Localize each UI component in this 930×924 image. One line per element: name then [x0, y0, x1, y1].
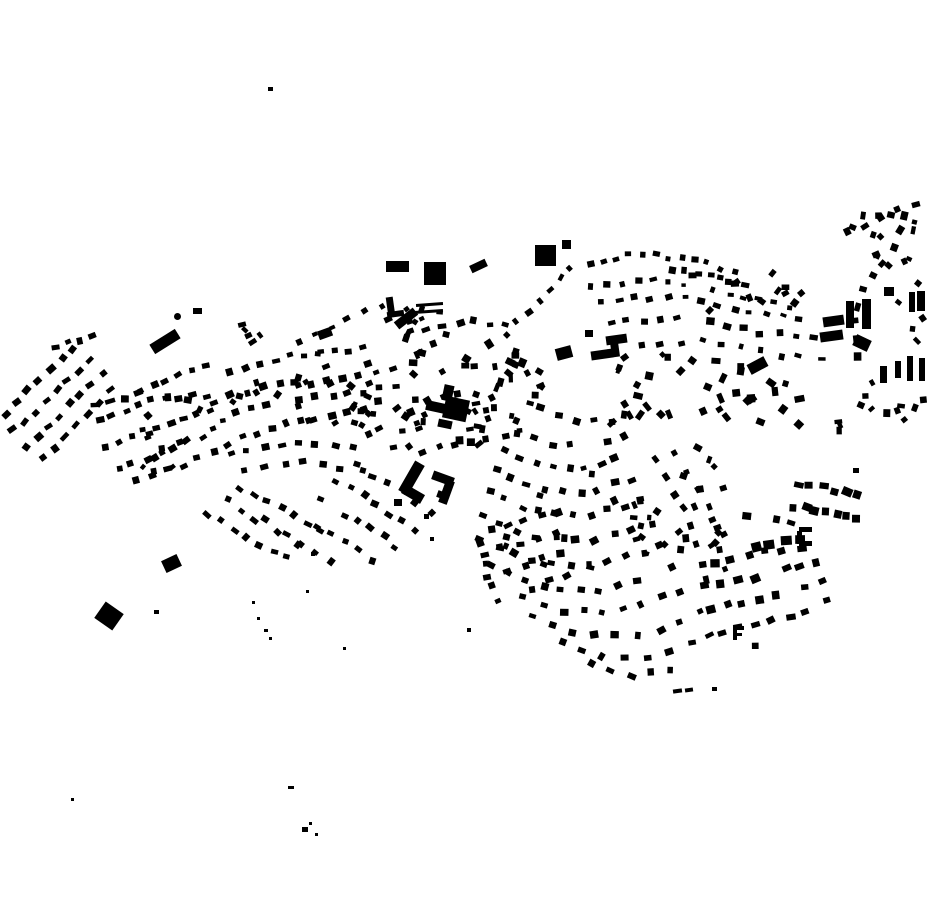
isolated-building-dot — [424, 514, 429, 519]
building-footprint — [677, 546, 684, 554]
building-footprint — [771, 590, 779, 599]
building-footprint — [437, 323, 446, 329]
building-footprint — [718, 342, 725, 347]
building-footprint — [804, 482, 812, 489]
building-footprint — [795, 316, 803, 322]
building-footprint — [578, 489, 586, 497]
building-footprint — [588, 283, 593, 290]
building-footprint — [630, 515, 638, 520]
building-footprint — [488, 525, 496, 533]
building-footprint — [696, 485, 704, 493]
building-footprint — [150, 468, 157, 475]
building-footprint — [549, 442, 558, 449]
building-footprint — [129, 433, 136, 440]
isolated-building-dot — [252, 601, 255, 604]
building-footprint — [739, 324, 747, 331]
building-footprint — [787, 305, 793, 310]
building-footprint — [782, 285, 790, 291]
building-footprint — [657, 316, 664, 324]
building-footprint — [376, 384, 383, 390]
isolated-building-dot — [264, 629, 268, 632]
building-footprint — [603, 281, 610, 288]
isolated-building-dot — [269, 637, 272, 640]
building-footprint — [241, 467, 248, 474]
landmark-building — [193, 308, 202, 314]
landmark-building — [895, 361, 901, 378]
building-footprint — [301, 354, 307, 359]
building-footprint — [276, 379, 284, 387]
building-footprint — [409, 359, 418, 366]
building-footprint — [700, 581, 710, 589]
landmark-building — [880, 366, 887, 383]
landmark-building — [919, 358, 925, 381]
f-small-top — [733, 626, 744, 630]
building-footprint — [665, 279, 670, 284]
building-footprint — [603, 438, 612, 446]
landmark-building — [394, 499, 402, 506]
building-footprint — [268, 425, 276, 432]
figure-ground-map — [0, 0, 930, 924]
isolated-building-dot — [309, 822, 312, 825]
building-footprint — [742, 512, 752, 520]
landmark-building — [909, 292, 915, 312]
c-building-bottom — [799, 541, 812, 546]
building-footprint — [567, 464, 574, 472]
large-hall-nw — [386, 261, 409, 272]
isolated-building-dot — [343, 647, 346, 650]
building-footprint — [644, 655, 652, 661]
isolated-building-dot — [712, 687, 717, 691]
building-footprint — [649, 520, 656, 528]
bar-building — [862, 299, 871, 329]
building-footprint — [752, 643, 759, 649]
building-footprint — [338, 374, 347, 383]
building-footprint — [586, 561, 591, 568]
building-footprint — [158, 445, 165, 452]
building-footprint — [680, 254, 686, 261]
building-footprint — [577, 586, 585, 593]
building-footprint — [633, 577, 642, 584]
building-footprint — [139, 427, 145, 433]
building-footprint — [682, 534, 689, 543]
building-footprint — [708, 272, 715, 277]
building-footprint — [755, 595, 765, 604]
building-footprint — [755, 331, 763, 338]
building-footprint — [641, 319, 648, 325]
building-footprint — [910, 326, 916, 332]
building-footprint — [456, 436, 464, 444]
building-footprint — [189, 367, 195, 373]
building-footprint — [781, 536, 793, 546]
building-footprint — [822, 507, 829, 515]
isolated-building-dot — [306, 590, 309, 593]
building-footprint — [165, 393, 172, 401]
building-footprint — [556, 549, 565, 557]
building-footprint — [716, 579, 725, 588]
isolated-building-dot — [430, 537, 434, 541]
isolated-building-dot — [71, 798, 74, 801]
building-footprint — [487, 322, 493, 327]
building-footprint — [412, 396, 419, 403]
landmark-building — [907, 356, 913, 381]
building-footprint — [842, 512, 850, 520]
building-footprint — [298, 458, 306, 465]
building-footprint — [248, 405, 255, 412]
building-footprint — [295, 396, 303, 404]
building-footprint — [635, 277, 642, 283]
building-footprint — [117, 465, 123, 472]
isolated-building-dot — [288, 786, 294, 789]
building-footprint — [716, 546, 723, 553]
building-footprint — [711, 358, 721, 365]
building-footprint — [121, 395, 129, 402]
building-footprint — [581, 607, 587, 613]
building-footprint — [509, 413, 515, 419]
f-small-mid — [733, 633, 742, 636]
building-footprint — [681, 267, 687, 274]
building-footprint — [883, 409, 890, 417]
building-footprint — [589, 471, 595, 478]
building-footprint — [725, 279, 732, 285]
building-footprint — [761, 547, 769, 554]
building-footprint — [183, 396, 192, 404]
building-footprint — [336, 466, 344, 472]
building-footprint — [681, 283, 685, 287]
small-square-n — [562, 240, 571, 249]
building-footprint — [621, 655, 629, 661]
building-footprint — [668, 266, 676, 274]
landmark-building — [917, 291, 925, 311]
building-footprint — [317, 349, 324, 354]
building-footprint — [640, 252, 646, 258]
building-footprint — [630, 293, 638, 301]
building-footprint — [667, 667, 673, 674]
building-footprint — [282, 461, 289, 468]
building-footprint — [644, 371, 653, 380]
building-footprint — [691, 256, 699, 262]
building-footprint — [699, 561, 707, 568]
building-footprint — [467, 438, 475, 446]
building-footprint — [771, 387, 778, 397]
building-footprint — [392, 384, 400, 389]
building-footprint — [635, 632, 641, 640]
building-footprint — [555, 412, 563, 419]
building-footprint — [773, 515, 781, 523]
bar-building — [846, 301, 854, 328]
building-footprint — [665, 256, 671, 262]
isolated-building-dot — [257, 617, 260, 620]
building-footprint — [514, 430, 521, 437]
building-footprint — [818, 357, 825, 361]
large-square-block-nw — [424, 262, 446, 285]
building-footprint — [319, 461, 327, 468]
building-footprint — [647, 668, 654, 676]
building-footprint — [91, 403, 101, 408]
building-footprint — [532, 392, 539, 399]
building-footprint — [483, 407, 490, 414]
round-building — [174, 313, 181, 320]
building-footprint — [852, 515, 860, 523]
building-footprint — [610, 631, 619, 638]
building-footprint — [491, 404, 497, 411]
building-footprint — [332, 347, 338, 353]
building-footprints-svg — [0, 0, 930, 924]
building-footprint — [566, 441, 573, 448]
building-footprint — [746, 310, 752, 314]
building-footprint — [683, 295, 689, 299]
building-footprint — [728, 293, 734, 297]
building-footprint — [311, 441, 319, 448]
building-footprint — [560, 609, 569, 616]
building-footprint — [920, 396, 927, 403]
building-footprint — [612, 530, 619, 537]
building-footprint — [453, 390, 461, 398]
landmark-building — [585, 330, 593, 337]
building-footprint — [399, 428, 406, 434]
building-footprint — [570, 535, 579, 543]
building-footprint — [482, 435, 489, 443]
building-footprint — [567, 562, 575, 570]
isolated-building-dot — [302, 827, 308, 832]
building-footprint — [789, 504, 796, 512]
building-footprint — [470, 363, 478, 369]
building-footprint — [295, 440, 302, 446]
building-footprint — [102, 443, 110, 451]
building-footprint — [854, 352, 862, 360]
building-footprint — [561, 534, 568, 542]
building-footprint — [174, 395, 183, 402]
building-footprint — [647, 515, 652, 521]
building-footprint — [310, 392, 318, 401]
building-footprint — [528, 557, 536, 564]
building-footprint — [797, 545, 807, 552]
building-footprint — [374, 397, 382, 405]
building-footprint — [556, 587, 563, 593]
building-footprint — [330, 392, 337, 400]
landmark-building — [884, 287, 894, 296]
building-footprint — [758, 347, 764, 354]
building-footprint — [529, 586, 536, 593]
building-footprint — [243, 448, 249, 453]
building-footprint — [589, 630, 599, 639]
building-footprint — [801, 584, 809, 590]
isolated-building-dot — [154, 610, 159, 614]
large-square-block-n — [535, 245, 556, 266]
building-footprint — [695, 271, 702, 276]
isolated-building-dot — [315, 833, 318, 836]
building-footprint — [638, 342, 645, 349]
building-footprint — [516, 541, 524, 547]
isolated-building-dot — [311, 552, 315, 556]
isolated-building-dot — [467, 628, 471, 632]
building-footprint — [793, 334, 800, 340]
building-footprint — [483, 561, 489, 567]
building-footprint — [421, 418, 426, 425]
isolated-building-dot — [853, 468, 859, 473]
building-footprint — [622, 317, 629, 323]
building-footprint — [819, 482, 829, 489]
building-footprint — [603, 505, 611, 512]
building-footprint — [625, 251, 631, 256]
building-footprint — [598, 299, 604, 304]
building-footprint — [710, 559, 720, 567]
building-footprint — [621, 410, 628, 419]
isolated-building-dot — [268, 87, 273, 91]
building-footprint — [737, 366, 745, 375]
building-footprint — [777, 329, 784, 336]
building-footprint — [732, 389, 741, 397]
building-footprint — [706, 317, 715, 325]
building-footprint — [862, 393, 868, 399]
map-background — [0, 0, 930, 924]
building-footprint — [833, 509, 842, 518]
building-footprint — [344, 348, 352, 354]
building-footprint — [875, 212, 881, 218]
